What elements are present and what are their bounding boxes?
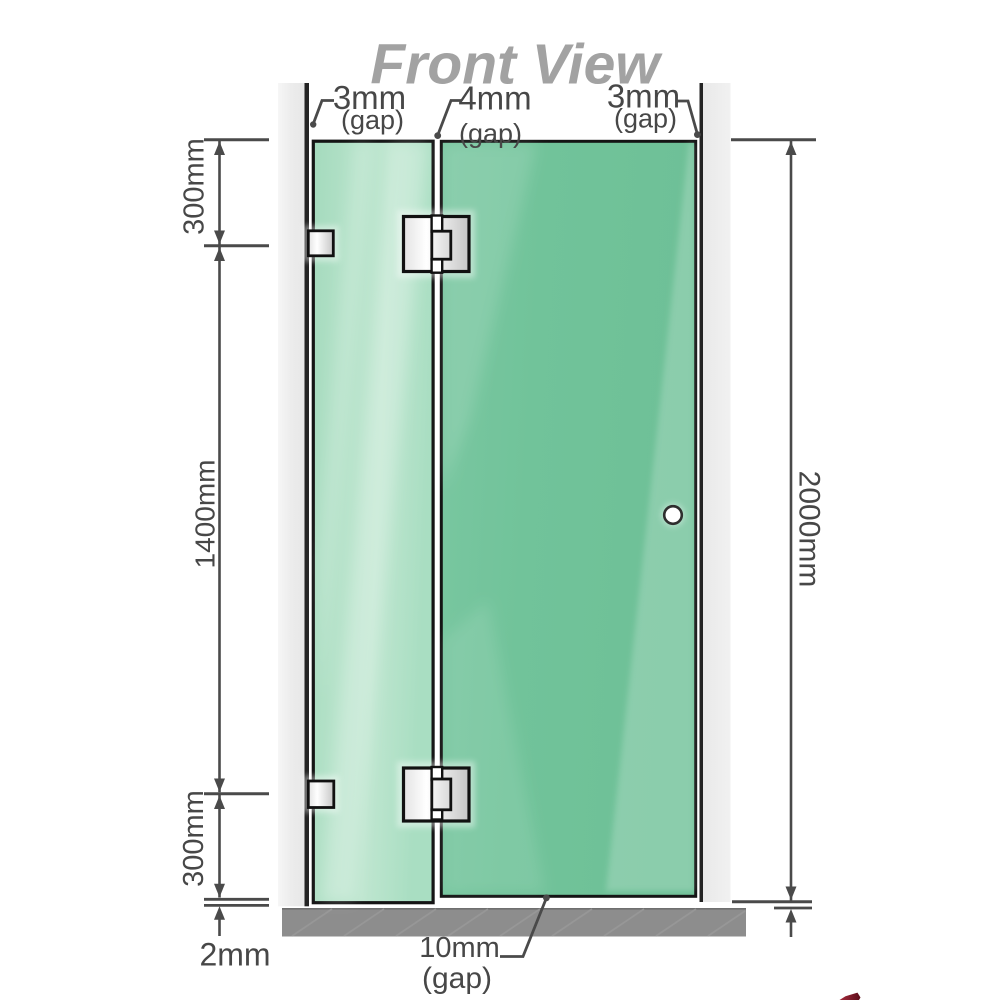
svg-text:2mm: 2mm: [199, 937, 270, 973]
svg-text:10mm: 10mm: [419, 932, 500, 964]
svg-text:4mm: 4mm: [458, 80, 531, 117]
svg-text:(gap): (gap): [341, 105, 404, 135]
svg-text:300mm: 300mm: [178, 790, 210, 887]
svg-text:1400mm: 1400mm: [189, 460, 220, 569]
svg-text:(gap): (gap): [422, 962, 492, 995]
svg-text:2000mm: 2000mm: [793, 471, 826, 588]
svg-text:(gap): (gap): [614, 104, 677, 134]
svg-text:300mm: 300mm: [179, 138, 211, 235]
svg-text:(gap): (gap): [459, 119, 522, 149]
